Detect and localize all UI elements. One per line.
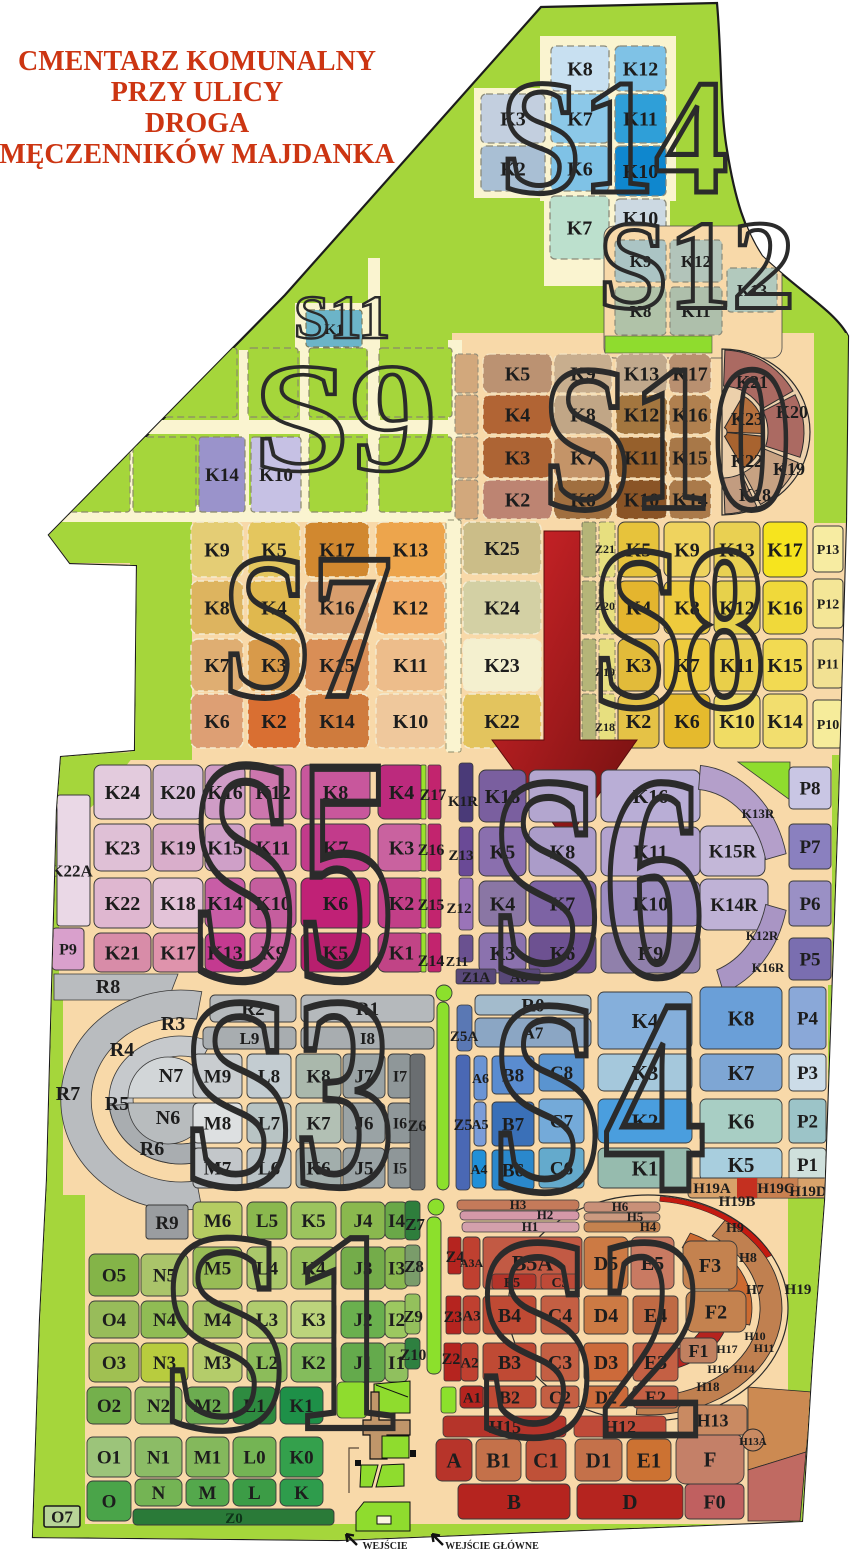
svg-text:Z6: Z6 [408,1118,427,1135]
svg-text:F0: F0 [703,1492,725,1514]
svg-text:O1: O1 [97,1448,121,1469]
svg-text:O4: O4 [102,1310,127,1331]
svg-text:P2: P2 [797,1112,818,1133]
svg-text:N6: N6 [156,1107,180,1129]
svg-text:Z8: Z8 [404,1257,424,1276]
svg-text:A: A [446,1448,462,1472]
svg-text:P12: P12 [817,597,840,612]
svg-text:H17: H17 [716,1342,737,1356]
svg-text:Z5: Z5 [454,1117,473,1134]
svg-text:Z13: Z13 [448,848,473,864]
svg-text:Z5A: Z5A [450,1029,479,1045]
svg-text:I6: I6 [393,1116,407,1133]
svg-text:P5: P5 [799,950,820,971]
svg-text:H8: H8 [739,1251,757,1266]
svg-text:WEJŚCIE: WEJŚCIE [362,1540,407,1551]
svg-text:H11: H11 [754,1341,775,1355]
svg-text:A6: A6 [472,1072,489,1087]
svg-text:K22: K22 [105,893,141,915]
svg-text:F: F [704,1447,717,1471]
svg-text:P11: P11 [817,657,839,672]
svg-text:R6: R6 [140,1138,164,1160]
svg-text:R4: R4 [110,1039,134,1061]
svg-text:O: O [102,1492,117,1513]
svg-text:K14R: K14R [710,895,758,916]
svg-text:DROGA: DROGA [145,108,250,139]
svg-text:K13R: K13R [742,806,775,821]
svg-text:P3: P3 [797,1063,818,1084]
svg-text:K25: K25 [484,538,520,560]
svg-text:K7: K7 [728,1061,755,1085]
svg-text:K16: K16 [767,598,803,620]
svg-text:P8: P8 [799,779,820,800]
svg-text:O2: O2 [97,1396,121,1417]
svg-text:CMENTARZ KOMUNALNY: CMENTARZ KOMUNALNY [18,46,376,77]
svg-text:H16: H16 [707,1362,728,1376]
svg-text:K4: K4 [505,405,531,427]
svg-text:PRZY ULICY: PRZY ULICY [111,77,283,108]
svg-text:K2: K2 [505,490,531,512]
svg-text:K12: K12 [393,598,429,620]
svg-text:R7: R7 [56,1083,80,1105]
svg-text:P9: P9 [59,942,77,959]
svg-text:H19B: H19B [719,1194,756,1210]
svg-text:Z1A: Z1A [462,970,491,986]
svg-text:P7: P7 [799,837,821,858]
svg-text:R8: R8 [96,976,120,998]
svg-text:K24: K24 [105,782,141,804]
svg-text:A5: A5 [471,1118,488,1133]
svg-text:Z11: Z11 [446,955,469,970]
svg-text:S1: S1 [160,1173,405,1491]
svg-text:P4: P4 [797,1009,819,1030]
svg-text:H19: H19 [785,1282,812,1298]
svg-text:Z17: Z17 [420,787,447,804]
svg-text:K23: K23 [484,655,520,677]
svg-text:O7: O7 [51,1507,73,1526]
svg-text:MĘCZENNIKÓW MAJDANKA: MĘCZENNIKÓW MAJDANKA [0,139,395,170]
svg-text:K12R: K12R [746,928,779,943]
svg-text:K11: K11 [393,655,427,677]
svg-text:K15: K15 [767,655,803,677]
svg-text:K8: K8 [728,1006,755,1030]
svg-text:Z12: Z12 [446,901,471,917]
svg-text:K23: K23 [105,838,141,860]
svg-text:P13: P13 [817,543,840,558]
svg-text:Z15: Z15 [418,897,445,914]
svg-text:O5: O5 [102,1266,126,1287]
svg-text:K24: K24 [484,598,520,620]
svg-text:K16R: K16R [752,960,785,975]
svg-text:Z0: Z0 [225,1511,243,1527]
svg-text:K3: K3 [505,448,531,470]
svg-text:Z3: Z3 [444,1309,463,1326]
svg-text:H14: H14 [733,1362,754,1376]
svg-text:WEJŚCIE GŁÓWNE: WEJŚCIE GŁÓWNE [445,1540,539,1551]
svg-text:Z9: Z9 [403,1307,423,1326]
svg-text:K5: K5 [728,1153,755,1177]
svg-text:K1R: K1R [448,794,478,810]
svg-text:N7: N7 [159,1065,183,1087]
svg-text:P6: P6 [799,894,820,915]
svg-text:O3: O3 [102,1353,126,1374]
svg-text:H19D: H19D [789,1184,827,1200]
svg-text:Z14: Z14 [418,953,445,970]
svg-text:K13: K13 [393,540,429,562]
svg-text:S12: S12 [598,196,795,336]
svg-text:H7: H7 [746,1283,764,1298]
svg-text:S2: S2 [475,1176,705,1498]
svg-text:K14: K14 [205,465,239,486]
svg-text:K21: K21 [105,943,141,965]
svg-text:K22A: K22A [50,861,93,880]
svg-text:K15R: K15R [709,842,757,863]
svg-text:Z16: Z16 [418,842,445,859]
svg-text:K14: K14 [767,711,803,733]
svg-text:I7: I7 [393,1069,407,1086]
svg-text:H13A: H13A [739,1436,767,1448]
svg-text:F2: F2 [705,1302,727,1324]
svg-text:P1: P1 [797,1155,818,1176]
svg-text:K10: K10 [393,711,429,733]
svg-text:R5: R5 [105,1093,129,1115]
svg-text:Z2: Z2 [442,1351,461,1368]
svg-text:K5: K5 [505,364,531,386]
svg-text:P10: P10 [817,718,840,733]
svg-text:Z7: Z7 [405,1215,425,1234]
svg-text:S9: S9 [253,331,437,504]
svg-text:H9: H9 [726,1221,744,1236]
svg-text:K6: K6 [728,1109,755,1133]
